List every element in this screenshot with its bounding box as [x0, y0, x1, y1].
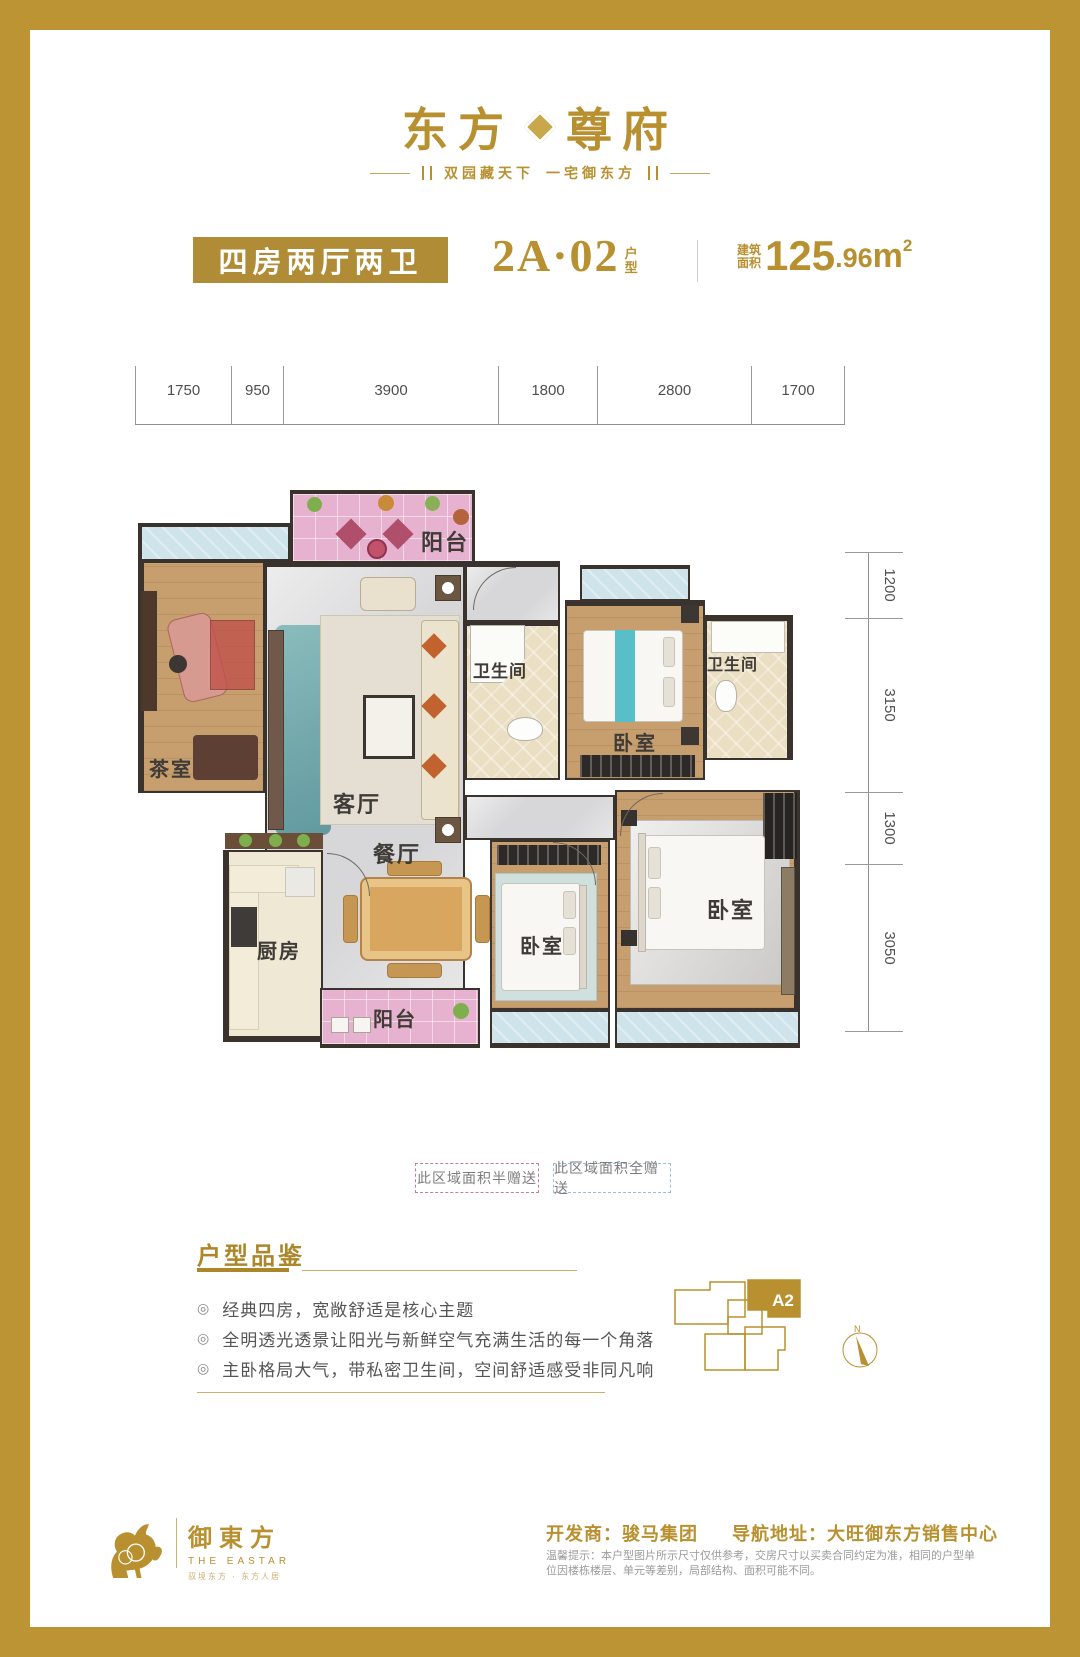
pillow: [563, 891, 576, 919]
pillow: [648, 847, 661, 879]
plant: [378, 495, 394, 511]
dining-chair: [343, 895, 358, 943]
area-integer: 125: [765, 234, 835, 278]
tea-room-rug: [210, 620, 255, 690]
unit-suffix-top: 户: [625, 247, 638, 261]
nightstand: [681, 727, 699, 745]
headboard: [579, 885, 587, 989]
wardrobe-top-bedroom: [580, 755, 695, 777]
headboard: [638, 833, 646, 952]
dining-chair: [387, 963, 442, 978]
tea-room-sofa: [193, 735, 258, 780]
feature-bullet-2: ◎ 全明透光透景让阳光与新鲜空气充满生活的每一个角落: [197, 1326, 654, 1351]
compass-north-label: N: [854, 1324, 861, 1334]
room-label-bath-1: 卫生间: [473, 657, 527, 682]
tv-cabinet: [268, 630, 284, 830]
bedroom-top-bay-window: [580, 565, 690, 601]
double-bar-icon: [648, 166, 658, 180]
tagline-rule-right: [670, 173, 710, 174]
footer-logo-divider: [176, 1518, 177, 1568]
master-bay-window: [615, 1010, 800, 1048]
brand-tagline: 双园藏天下 一宅御东方: [0, 163, 1080, 183]
dim-top-6: 1700: [751, 366, 845, 424]
pillow: [663, 637, 675, 667]
tagline-right: 一宅御东方: [546, 163, 636, 183]
tagline-left: 双园藏天下: [444, 163, 534, 183]
brand-word-right: 尊府: [566, 94, 678, 160]
feature-text-3: 主卧格局大气，带私密卫生间，空间舒适感受非同凡响: [222, 1356, 654, 1381]
coffee-table: [363, 695, 415, 759]
double-bar-icon: [422, 166, 432, 180]
bullet-icon: ◎: [197, 1300, 210, 1317]
developer-text: 开发商：骏马集团: [546, 1520, 698, 1546]
legend-half-gift: 此区域面积半赠送: [415, 1163, 539, 1193]
tea-room-bay-window: [138, 523, 290, 561]
plant: [297, 834, 310, 847]
plant: [239, 834, 252, 847]
room-label-kitchen: 厨房: [257, 935, 301, 964]
poster-page: 东方 尊府 双园藏天下 一宅御东方 四房两厅两卫 2A·02 户 型 建筑 面积…: [0, 0, 1080, 1657]
plant: [425, 496, 440, 511]
footer-logo-text: 御東方 THE EASTAR 驭境东方 · 东方人居: [188, 1518, 290, 1582]
features-bottom-rule: [197, 1392, 605, 1393]
bullet-icon: ◎: [197, 1360, 210, 1377]
footer-logo-en: THE EASTAR: [188, 1556, 290, 1567]
dim-right-3: 1300: [869, 792, 909, 864]
footer-logo-sub: 驭境东方 · 东方人居: [188, 1571, 290, 1582]
brand-logo: 东方 尊府: [0, 94, 1080, 160]
master-cabinet: [763, 793, 797, 859]
unit-suffix-bottom: 型: [625, 261, 638, 275]
room-label-tea: 茶室: [149, 753, 193, 782]
titlebar-divider: [697, 240, 698, 282]
room-label-living: 客厅: [333, 787, 381, 819]
dim-top-1: 1750: [135, 366, 231, 424]
unit-code: 2A·02: [492, 231, 620, 281]
master-dresser: [781, 867, 795, 995]
stove: [231, 907, 257, 947]
dim-right-2: 3150: [869, 618, 909, 792]
keyplan-building-outline: [675, 1282, 745, 1324]
dim-top-2: 950: [231, 366, 283, 424]
dim-top-4: 1800: [498, 366, 597, 424]
plant: [269, 834, 282, 847]
area-unit: m: [873, 234, 903, 278]
unit-code-suffix: 户 型: [625, 247, 638, 275]
plant: [453, 509, 469, 525]
dimension-chain-top: 17509503900180028001700: [135, 366, 845, 425]
feature-bullet-3: ◎ 主卧格局大气，带私密卫生间，空间舒适感受非同凡响: [197, 1356, 654, 1381]
dim-top-3: 3900: [283, 366, 498, 424]
side-table: [435, 817, 461, 843]
feature-bullet-1: ◎ 经典四房，宽敞舒适是核心主题: [197, 1296, 474, 1321]
brand-word-left: 东方: [402, 94, 514, 160]
keyplan-unit-label: A2: [772, 1291, 794, 1310]
area-label-bottom: 面积: [737, 257, 761, 270]
bed-runner: [615, 630, 635, 722]
features-heading-underline: [197, 1268, 289, 1272]
room-label-dining: 餐厅: [373, 837, 421, 869]
room-label-balcony-top: 阳台: [421, 525, 469, 557]
dim-right-4: 3050: [869, 864, 909, 1032]
plant: [453, 1003, 469, 1019]
armchair: [360, 577, 416, 611]
side-table: [435, 575, 461, 601]
room-label-bedroom-mid: 卧室: [520, 930, 564, 959]
footer-logo-cn: 御東方: [188, 1518, 290, 1553]
balcony-table: [367, 539, 387, 559]
tagline-rule-left: [370, 173, 410, 174]
nightstand: [681, 605, 699, 623]
floor-plan: 阳台 茶室 客厅 餐厅: [135, 465, 845, 1060]
footer-developer-line: 开发商：骏马集团 导航地址：大旺御东方销售中心: [546, 1520, 986, 1546]
area-superscript: 2: [903, 236, 912, 256]
laundry-sink: [353, 1017, 371, 1033]
tea-room-chair: [169, 655, 187, 673]
dimension-chain-right: 1200 3150 1300 3050: [868, 552, 909, 1032]
features-heading-rule: [302, 1270, 577, 1271]
fridge: [285, 867, 315, 897]
room-label-bath-2: 卫生间: [707, 651, 758, 675]
toilet: [715, 680, 737, 712]
compass-needle-icon: [856, 1336, 869, 1366]
nightstand: [621, 930, 637, 946]
legend-full-gift: 此区域面积全赠送: [553, 1163, 671, 1193]
area-decimal: .96: [835, 238, 873, 278]
tea-room-bookshelf: [141, 591, 157, 711]
plant: [307, 497, 322, 512]
room-label-bedroom-top: 卧室: [613, 727, 657, 756]
dining-chair: [475, 895, 490, 943]
feature-text-1: 经典四房，宽敞舒适是核心主题: [222, 1296, 474, 1321]
diamond-ornament-icon: [523, 110, 557, 144]
toilet: [507, 717, 543, 741]
bath2-counter: [711, 621, 785, 653]
pillow: [663, 677, 675, 707]
keyplan: A2 N: [650, 1272, 900, 1387]
footer-disclaimer: 温馨提示：本户型图片所示尺寸仅供参考，交房尺寸以买卖合同约定为准，相同的户型单位…: [546, 1549, 978, 1579]
feature-text-2: 全明透光透景让阳光与新鲜空气充满生活的每一个角落: [222, 1326, 654, 1351]
dining-table: [360, 877, 472, 961]
bullet-icon: ◎: [197, 1330, 210, 1347]
room-label-balcony-bottom: 阳台: [373, 1003, 417, 1032]
bedroom-mid-bay-window: [490, 1010, 610, 1048]
corridor: [465, 795, 615, 840]
features-heading: 户型品鉴: [197, 1236, 305, 1271]
built-area-label: 建筑 面积: [737, 244, 761, 270]
built-area-group: 建筑 面积 125 .96 m 2: [737, 234, 912, 278]
pillow: [648, 887, 661, 919]
horse-logo-icon: [100, 1510, 166, 1582]
laundry-sink: [331, 1017, 349, 1033]
room-label-bedroom-master: 卧室: [707, 893, 755, 925]
nav-address-text: 导航地址：大旺御东方销售中心: [732, 1520, 998, 1546]
unit-code-group: 2A·02 户 型: [492, 231, 638, 281]
pillow: [563, 927, 576, 955]
unit-type-badge: 四房两厅两卫: [193, 237, 448, 283]
dim-right-1: 1200: [869, 552, 909, 618]
dim-top-5: 2800: [597, 366, 751, 424]
keyplan-building-outline: [705, 1334, 745, 1370]
